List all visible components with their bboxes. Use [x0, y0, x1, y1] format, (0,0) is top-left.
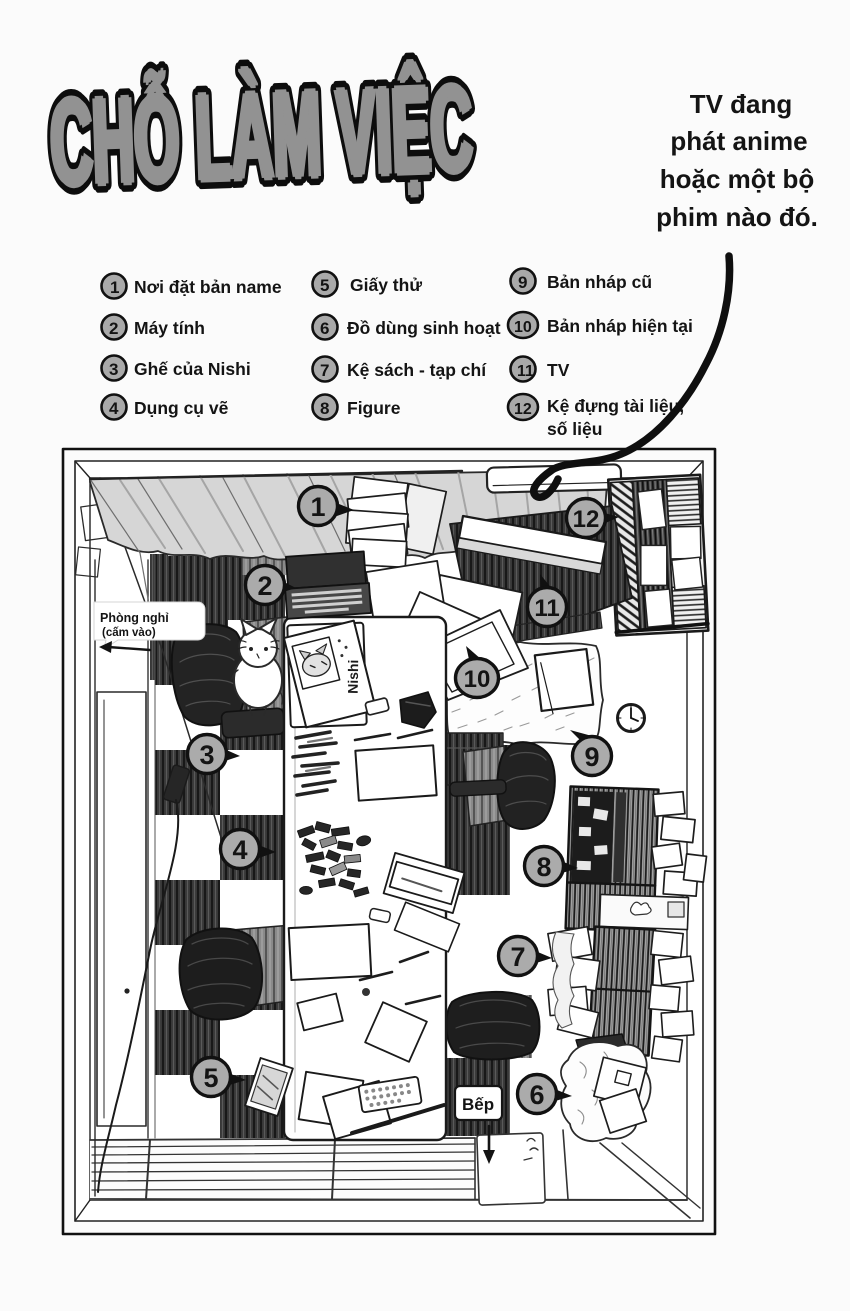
svg-text:8: 8	[536, 852, 551, 882]
svg-text:phim nào đó.: phim nào đó.	[656, 202, 818, 232]
svg-text:2: 2	[109, 319, 118, 338]
svg-text:8: 8	[320, 399, 329, 418]
svg-text:Dụng cụ vẽ: Dụng cụ vẽ	[134, 398, 229, 418]
svg-text:11: 11	[517, 363, 534, 380]
svg-text:1: 1	[110, 278, 119, 297]
svg-text:6: 6	[320, 319, 329, 338]
svg-text:Figure: Figure	[347, 398, 401, 418]
svg-text:Phòng nghỉ: Phòng nghỉ	[100, 611, 169, 625]
svg-text:Bản nháp hiện tại: Bản nháp hiện tại	[547, 316, 693, 336]
svg-text:(cấm vào): (cấm vào)	[102, 627, 156, 639]
svg-text:11: 11	[534, 595, 559, 622]
svg-text:Bếp: Bếp	[462, 1095, 494, 1114]
svg-text:Kệ đựng tài liệu,: Kệ đựng tài liệu,	[547, 396, 684, 416]
svg-text:CHỖ LÀM VIỆC: CHỖ LÀM VIỆC	[48, 56, 475, 210]
svg-text:5: 5	[320, 276, 329, 295]
svg-text:9: 9	[584, 742, 599, 772]
svg-text:Bản nháp cũ: Bản nháp cũ	[547, 272, 652, 292]
svg-text:2: 2	[257, 571, 272, 601]
svg-text:Nơi đặt bản name: Nơi đặt bản name	[134, 277, 282, 297]
svg-text:hoặc một bộ: hoặc một bộ	[660, 164, 815, 194]
svg-text:1: 1	[310, 492, 325, 522]
svg-text:số liệu: số liệu	[547, 419, 602, 439]
svg-text:3: 3	[199, 740, 214, 770]
svg-text:10: 10	[464, 666, 491, 693]
svg-text:Đồ dùng sinh hoạt: Đồ dùng sinh hoạt	[347, 318, 501, 338]
svg-text:Kệ sách - tạp chí: Kệ sách - tạp chí	[347, 360, 487, 380]
svg-text:12: 12	[573, 506, 600, 533]
svg-text:TV đang: TV đang	[690, 89, 793, 119]
svg-text:5: 5	[203, 1063, 218, 1093]
svg-text:12: 12	[514, 401, 532, 418]
svg-text:Giấy thử: Giấy thử	[350, 275, 422, 295]
svg-text:4: 4	[232, 835, 247, 865]
svg-text:Nishi: Nishi	[345, 659, 362, 694]
svg-text:Máy tính: Máy tính	[134, 318, 205, 338]
svg-text:7: 7	[320, 361, 329, 380]
svg-text:9: 9	[518, 273, 527, 292]
svg-text:3: 3	[109, 360, 118, 379]
svg-text:4: 4	[109, 399, 119, 418]
svg-text:7: 7	[510, 942, 525, 972]
svg-text:6: 6	[529, 1080, 544, 1110]
svg-text:TV: TV	[547, 360, 570, 380]
svg-text:Ghế của Nishi: Ghế của Nishi	[134, 359, 251, 379]
svg-text:phát anime: phát anime	[670, 126, 807, 156]
svg-text:10: 10	[514, 319, 532, 336]
